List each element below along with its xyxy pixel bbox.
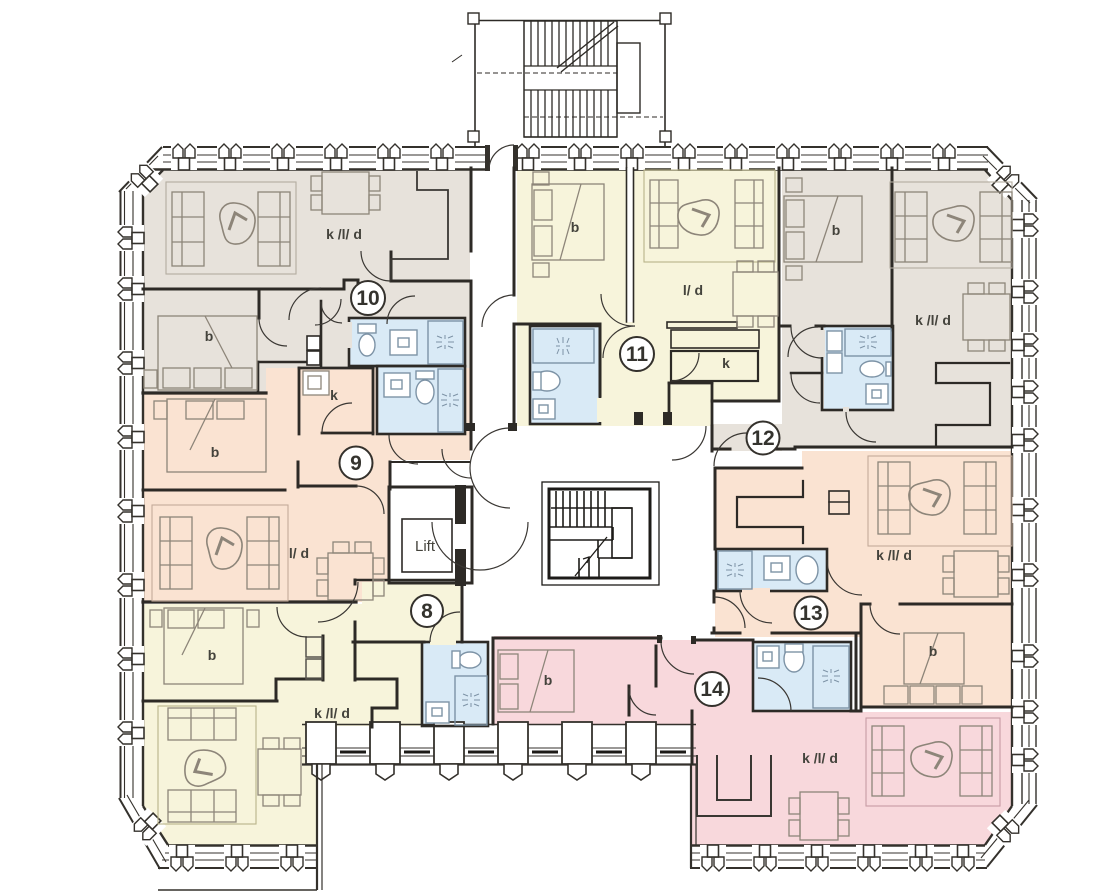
svg-text:b: b: [205, 328, 214, 344]
svg-text:k: k: [330, 387, 338, 403]
svg-text:b: b: [211, 444, 220, 460]
svg-text:Lift: Lift: [415, 538, 436, 555]
svg-text:10: 10: [356, 287, 379, 310]
svg-text:k /l/ d: k /l/ d: [802, 750, 838, 766]
svg-text:11: 11: [626, 343, 649, 366]
svg-text:13: 13: [799, 602, 822, 625]
svg-text:b: b: [929, 643, 938, 659]
svg-text:k: k: [722, 355, 730, 371]
svg-text:b: b: [544, 672, 553, 688]
svg-text:9: 9: [350, 452, 362, 475]
svg-text:12: 12: [751, 427, 774, 450]
svg-text:b: b: [208, 647, 217, 663]
svg-text:b: b: [571, 219, 580, 235]
svg-text:k /l/ d: k /l/ d: [326, 226, 362, 242]
svg-text:k /l/ d: k /l/ d: [915, 312, 951, 328]
svg-text:l/ d: l/ d: [289, 545, 309, 561]
svg-text:b: b: [832, 222, 841, 238]
svg-text:k /l/ d: k /l/ d: [314, 705, 350, 721]
svg-text:l/ d: l/ d: [683, 282, 703, 298]
svg-text:8: 8: [421, 600, 433, 623]
svg-text:k /l/ d: k /l/ d: [876, 547, 912, 563]
svg-text:14: 14: [700, 678, 724, 701]
